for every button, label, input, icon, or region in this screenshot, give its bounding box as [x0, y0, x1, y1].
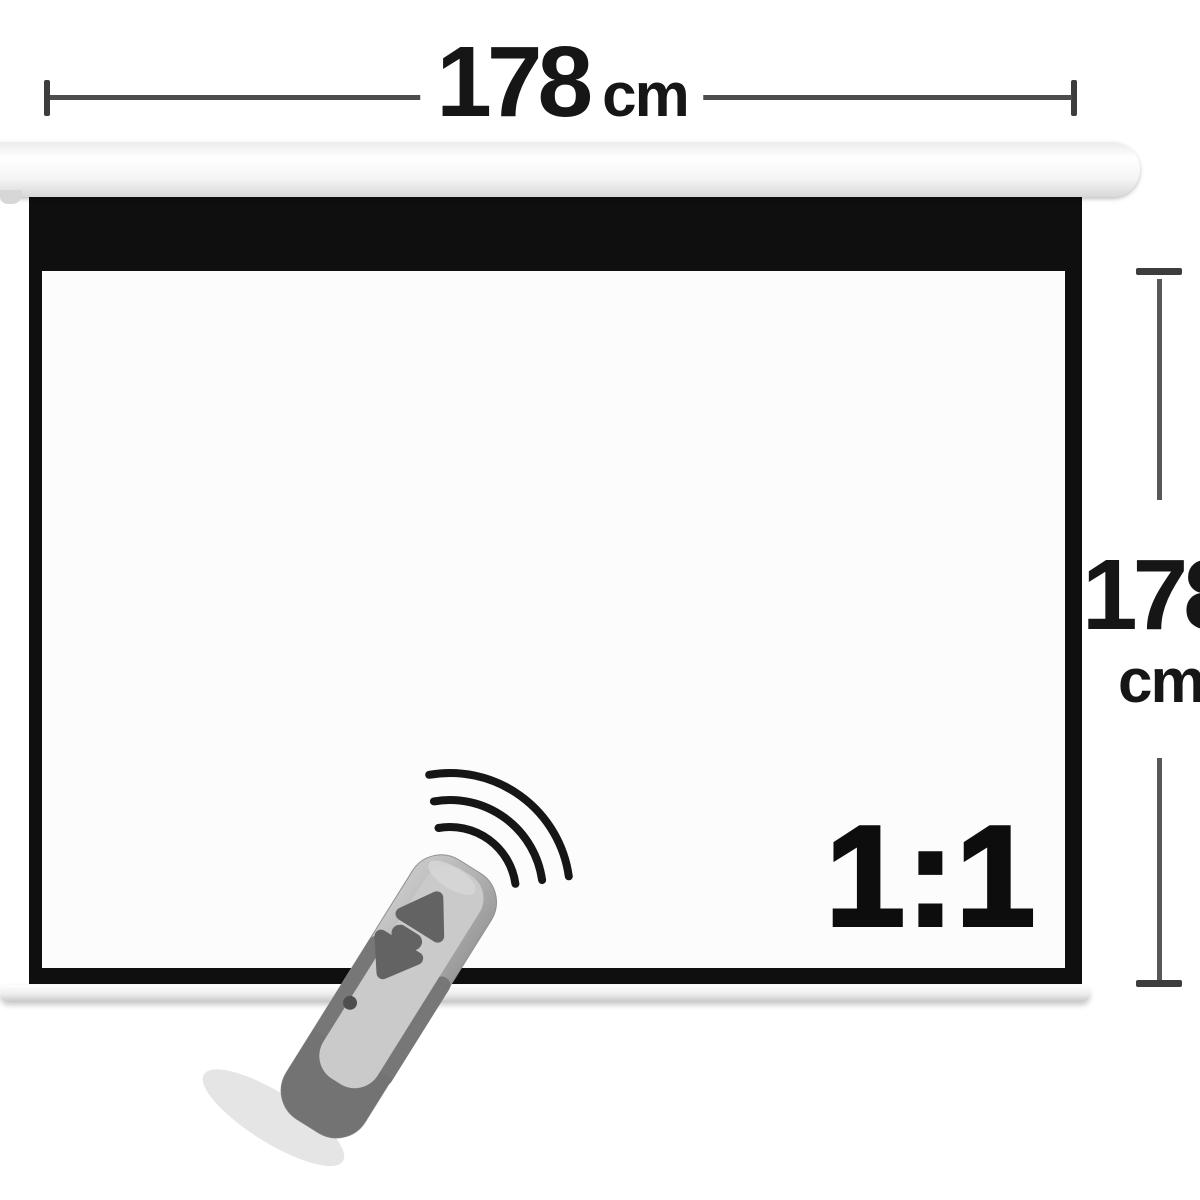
height-value: 178 — [1082, 545, 1200, 645]
aspect-ratio-label: 1:1 — [826, 806, 1037, 948]
height-dimension-tick-bottom — [1136, 980, 1182, 987]
screen-housing — [0, 142, 1140, 197]
height-dimension-line-upper — [1157, 279, 1162, 500]
remote-control-icon — [200, 805, 511, 1180]
height-dimension-unit-label: cm — [1118, 651, 1200, 713]
height-dimension-tick-top — [1136, 268, 1182, 275]
height-dimension-label: 178 — [1082, 545, 1200, 645]
width-unit: cm — [602, 65, 688, 127]
product-diagram: 178 cm 1:1 178 cm — [0, 0, 1200, 1200]
height-dimension-line-lower — [1157, 758, 1162, 980]
width-value: 178 — [436, 32, 588, 132]
width-dimension-label: 178 cm — [420, 32, 703, 132]
remote-control-graphic — [200, 720, 620, 1180]
height-unit: cm — [1118, 651, 1200, 713]
housing-bracket — [0, 190, 22, 204]
